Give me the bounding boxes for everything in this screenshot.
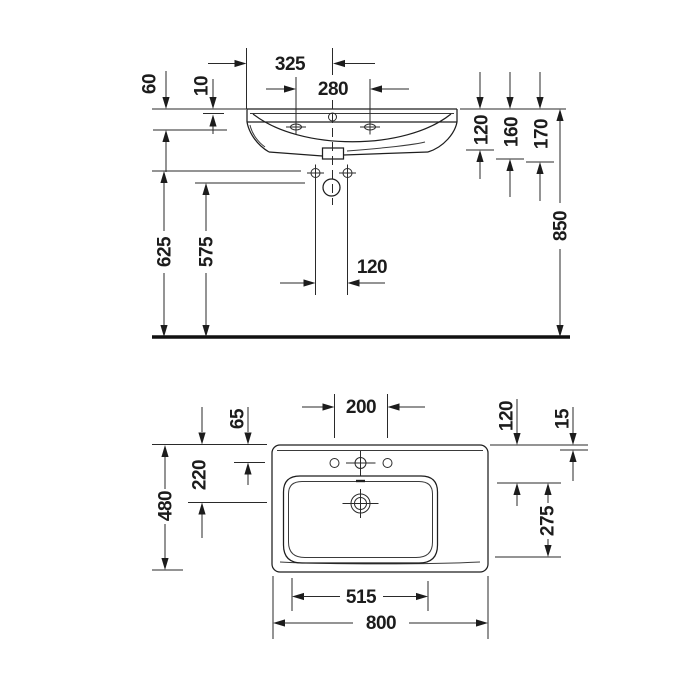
dim-label-220: 220: [190, 460, 211, 490]
basin-plan-outline: [272, 445, 488, 572]
dim-800: 800: [273, 576, 488, 639]
dim-label-15: 15: [553, 408, 574, 429]
dim-170: 170: [532, 72, 553, 201]
dim-label-275: 275: [538, 505, 559, 536]
dim-160: 160: [502, 72, 523, 197]
dim-label-515: 515: [346, 587, 377, 608]
bowl-curve: [253, 114, 451, 142]
plan-view: 200 480 65 220: [152, 394, 588, 639]
dim-15: 15: [553, 407, 577, 481]
dim-label-10: 10: [192, 76, 213, 96]
dim-575: 575: [197, 183, 218, 337]
dim-label-850: 850: [551, 211, 572, 241]
dim-label-575: 575: [197, 236, 218, 267]
dim-label-60: 60: [140, 74, 161, 94]
dim-625: 625: [155, 171, 176, 337]
dim-850: 850: [551, 109, 572, 337]
drain-connection-circle: [323, 179, 340, 196]
dim-60: 60: [140, 71, 170, 172]
dim-480: 480: [156, 445, 177, 570]
dim-275: 275: [538, 483, 559, 557]
dim-label-625: 625: [155, 236, 176, 267]
washbasin-dimension-drawing: 325 280 60 10: [0, 0, 700, 700]
technical-drawing-page: 325 280 60 10: [0, 0, 700, 700]
dim-label-120-right: 120: [472, 115, 493, 145]
dim-10: 10: [192, 76, 217, 134]
dim-120-bolts: 120: [280, 257, 387, 287]
dim-label-120-plan: 120: [497, 401, 518, 431]
tap-hole-center: [346, 451, 376, 476]
dim-200: 200: [302, 394, 425, 438]
dim-label-170: 170: [532, 119, 553, 149]
dim-120-plan: 120: [497, 399, 521, 506]
dim-label-65: 65: [228, 408, 249, 429]
dim-220: 220: [190, 407, 211, 538]
dim-label-800: 800: [366, 613, 396, 634]
dim-325: 325: [208, 48, 375, 109]
dim-label-480: 480: [156, 491, 177, 521]
dim-label-200: 200: [346, 397, 376, 418]
tap-hole-right: [383, 459, 392, 468]
dim-515: 515: [292, 578, 428, 611]
front-view: 325 280 60 10: [140, 48, 572, 337]
dim-120-right: 120: [472, 72, 493, 179]
dim-label-120-bolts: 120: [357, 257, 387, 278]
dim-label-280: 280: [318, 79, 348, 100]
dim-label-325: 325: [275, 54, 306, 75]
drain-hole: [343, 489, 379, 518]
tap-hole-left: [330, 459, 339, 468]
basin-front-outline: [247, 109, 457, 159]
dim-65: 65: [228, 407, 252, 485]
dim-label-160: 160: [502, 117, 523, 147]
dim-280: 280: [266, 77, 409, 122]
